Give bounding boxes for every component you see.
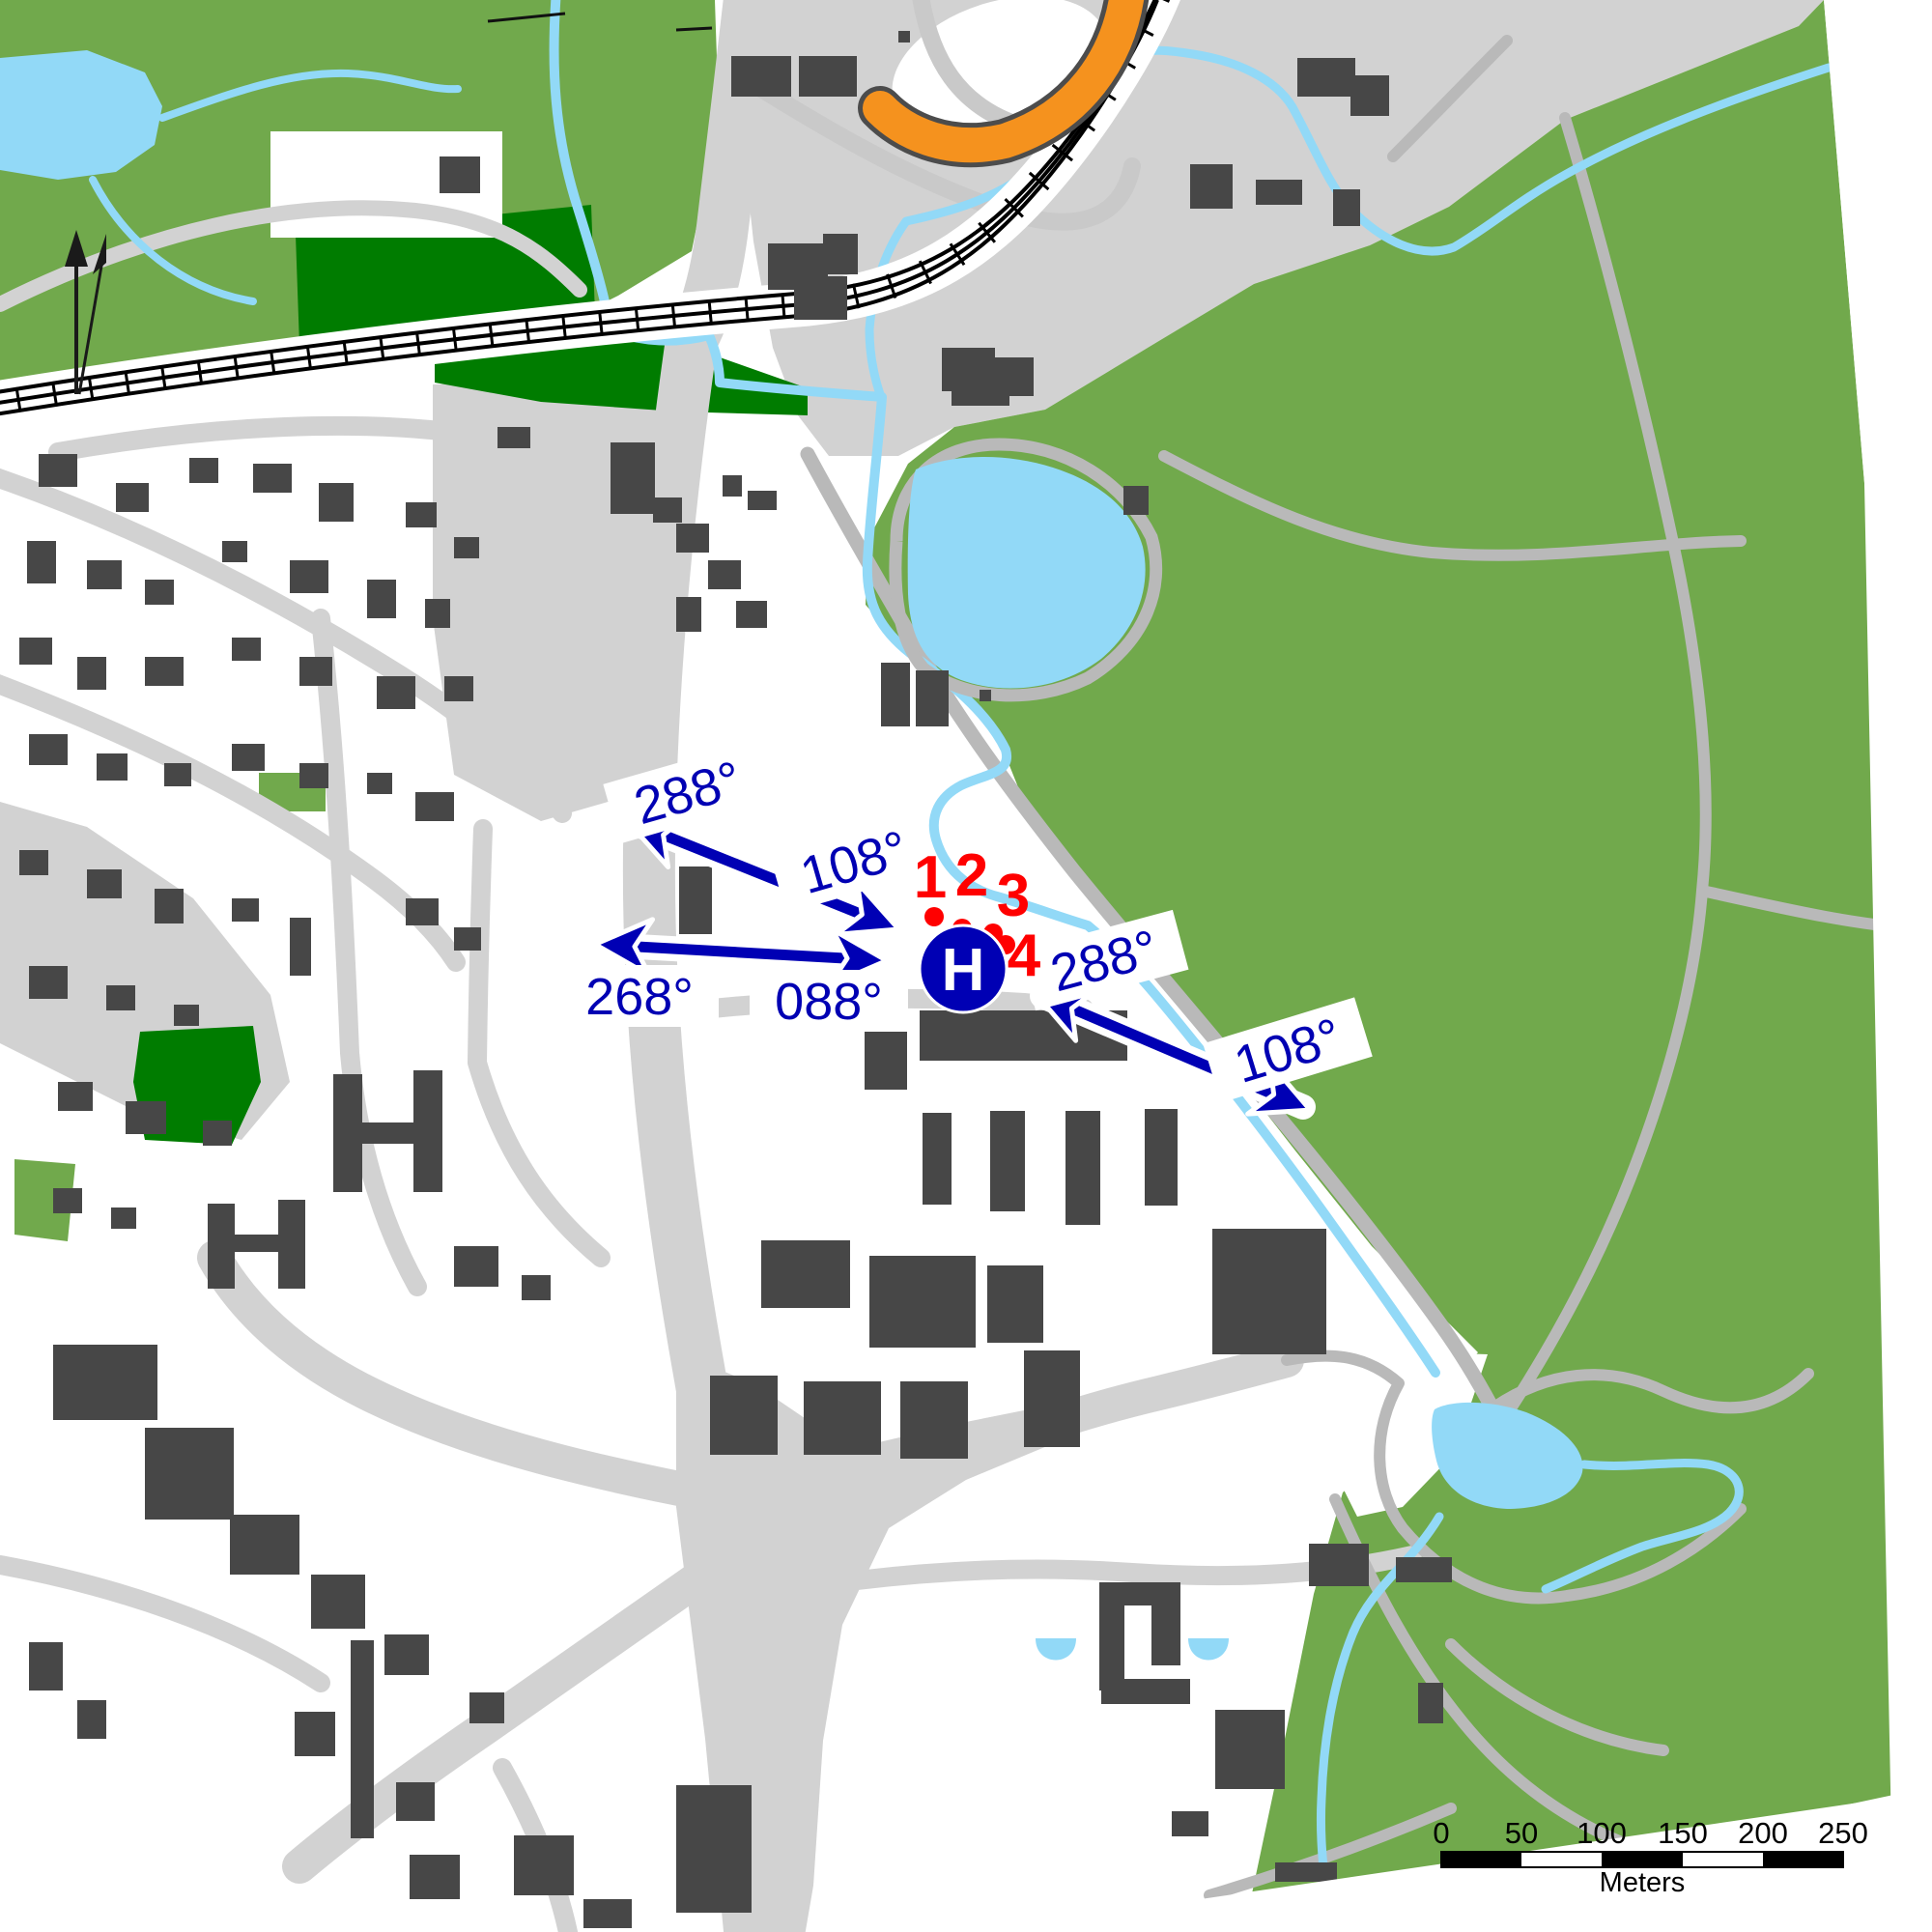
helipad-h-icon: H [942, 937, 985, 1004]
scale-tick-label: 250 [1818, 1816, 1868, 1850]
map-canvas: 288° 108° 268° 088° 288° 108° 1 2 3 [0, 0, 1932, 1932]
survey-point-label-4: 4 [1008, 923, 1041, 989]
bearing-label-268: 268° [560, 965, 719, 1027]
scale-tick-label: 100 [1577, 1816, 1627, 1850]
scale-unit-label: Meters [1600, 1867, 1686, 1898]
survey-point-label-2: 2 [955, 842, 988, 909]
scale-tick-label: 200 [1738, 1816, 1788, 1850]
svg-text:3: 3 [997, 863, 1030, 929]
bearing-label-088: 088° [750, 970, 908, 1032]
survey-point-label-1: 1 [914, 844, 947, 911]
scale-tick-label: 150 [1658, 1816, 1708, 1850]
svg-text:088°: 088° [775, 973, 883, 1031]
svg-text:4: 4 [1008, 923, 1041, 989]
scale-tick-label: 50 [1505, 1816, 1538, 1850]
helipad-symbol: H [920, 925, 1007, 1012]
scale-tick-label: 0 [1433, 1816, 1449, 1850]
svg-text:2: 2 [955, 842, 988, 909]
svg-text:1: 1 [914, 844, 947, 911]
svg-text:268°: 268° [585, 968, 694, 1026]
survey-point-label-3: 3 [997, 863, 1030, 929]
